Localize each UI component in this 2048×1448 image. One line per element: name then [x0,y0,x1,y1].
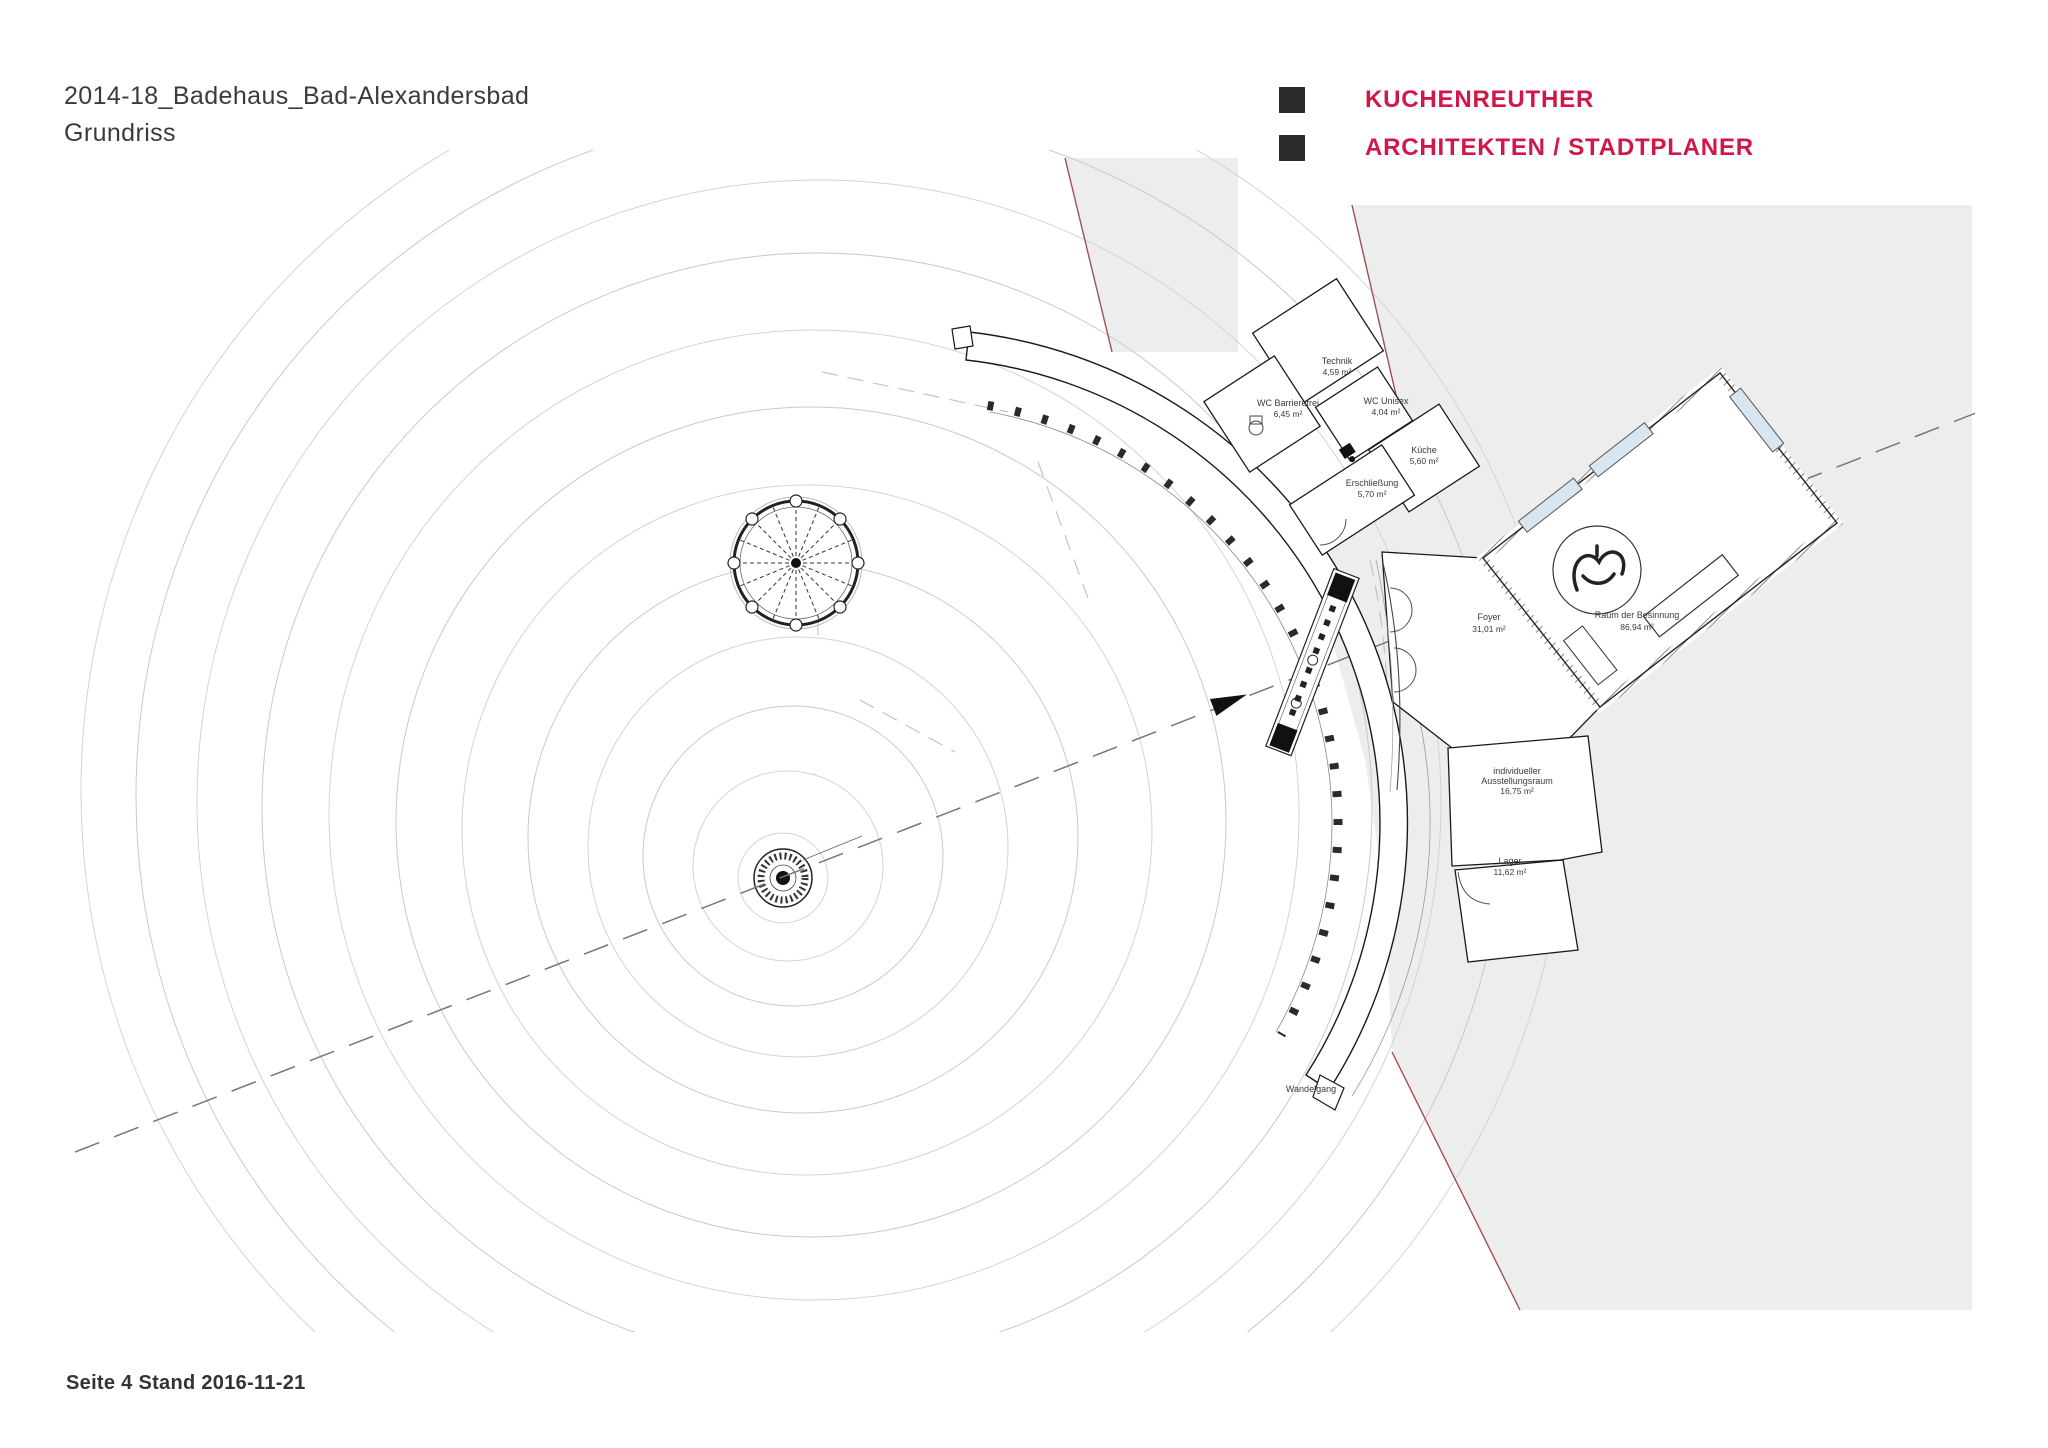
svg-text:31,01 m²: 31,01 m² [1472,624,1506,634]
pavilion-rotunda [728,495,864,631]
room-ausstellung [1448,736,1602,866]
svg-text:Technik: Technik [1322,356,1353,366]
svg-text:WC Barrierefrei: WC Barrierefrei [1257,398,1319,408]
floor-plan-drawing: Technik 4,59 m² WC Barrierefrei 6,45 m² … [0,0,2048,1448]
spring-fountain [754,836,862,907]
axis-arrow [1210,686,1250,716]
svg-text:Küche: Küche [1411,445,1437,455]
svg-text:Lager: Lager [1498,856,1521,866]
corridor-end-step [952,326,973,349]
svg-text:86,94 m²: 86,94 m² [1620,622,1654,632]
page-footer: Seite 4 Stand 2016-11-21 [66,1372,306,1395]
svg-text:Raum der Besinnung: Raum der Besinnung [1595,610,1680,620]
svg-text:Wandelgang: Wandelgang [1286,1084,1336,1094]
svg-text:4,59 m²: 4,59 m² [1323,367,1352,377]
drawing-sheet: 2014-18_Badehaus_Bad-Alexandersbad Grund… [0,0,2048,1448]
svg-text:WC Unisex: WC Unisex [1363,396,1409,406]
svg-text:5,60 m²: 5,60 m² [1410,456,1439,466]
leader-line [803,836,862,860]
site-ripple-circles [81,49,1565,1448]
svg-text:4,04 m²: 4,04 m² [1372,407,1401,417]
svg-text:11,62 m²: 11,62 m² [1494,867,1527,877]
svg-text:Ausstellungsraum: Ausstellungsraum [1481,776,1553,786]
svg-text:5,70 m²: 5,70 m² [1358,489,1387,499]
svg-text:6,45 m²: 6,45 m² [1274,409,1303,419]
svg-text:individueller: individueller [1493,766,1541,776]
svg-text:Erschließung: Erschließung [1346,478,1399,488]
svg-text:Foyer: Foyer [1477,612,1500,622]
svg-text:16,75 m²: 16,75 m² [1500,786,1534,796]
ornament-circle [1553,526,1641,614]
